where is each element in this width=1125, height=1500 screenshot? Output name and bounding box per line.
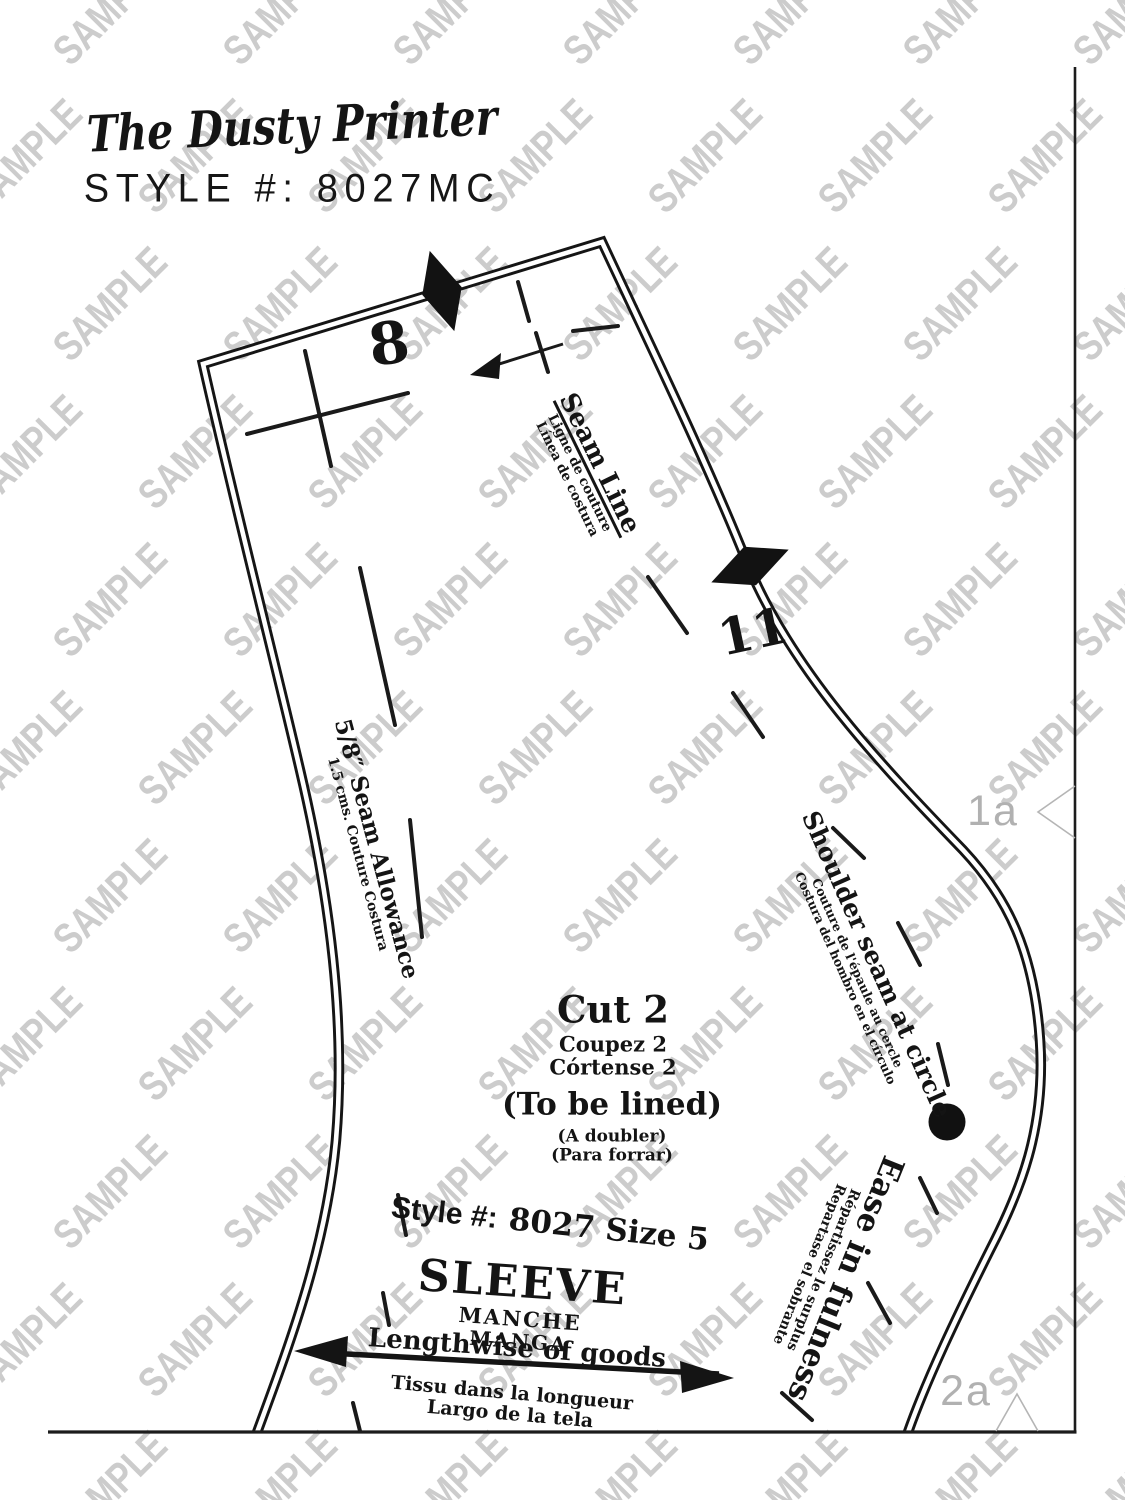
- watermark-text: SAMPLE: [0, 979, 92, 1111]
- lining-note-label: (To be lined) (A doubler) (Para forrar): [502, 1087, 722, 1164]
- watermark-text: SAMPLE: [895, 1423, 1027, 1500]
- watermark-text: SAMPLE: [980, 1275, 1112, 1407]
- marker-1a-chevron-icon: [1038, 786, 1075, 838]
- watermark-text: SAMPLE: [980, 387, 1112, 519]
- watermark-text: SAMPLE: [45, 0, 177, 75]
- watermark-text: SAMPLE: [725, 0, 857, 75]
- watermark-text: SAMPLE: [0, 831, 7, 963]
- watermark-text: SAMPLE: [300, 979, 432, 1111]
- watermark-text: SAMPLE: [640, 683, 772, 815]
- watermark-text: SAMPLE: [130, 979, 262, 1111]
- watermark-text: SAMPLE: [385, 1423, 517, 1500]
- watermark-text: SAMPLE: [0, 1127, 7, 1259]
- watermark-text: SAMPLE: [810, 387, 942, 519]
- watermark-text: SAMPLE: [640, 1275, 772, 1407]
- tile-marker-2a: 2a: [940, 1367, 992, 1415]
- cut-en: Cut 2: [549, 990, 676, 1031]
- lining-es: (Para forrar): [502, 1146, 722, 1165]
- watermark-text: SAMPLE: [130, 683, 262, 815]
- watermark-text: SAMPLE: [0, 91, 92, 223]
- watermark-text: SAMPLE: [555, 831, 687, 963]
- cut-fr: Coupez 2: [549, 1032, 676, 1055]
- watermark-text: SAMPLE: [385, 0, 517, 75]
- style-number-heading: STYLE #: 8027MC: [84, 167, 501, 212]
- cut-quantity-label: Cut 2 Coupez 2 Córtense 2: [549, 990, 676, 1079]
- watermark-text: SAMPLE: [895, 1127, 1027, 1259]
- tile-marker-1a: 1a: [967, 787, 1019, 835]
- watermark-text: SAMPLE: [45, 1127, 177, 1259]
- watermark-text: SAMPLE: [0, 535, 7, 667]
- watermark-text: SAMPLE: [980, 979, 1112, 1111]
- watermark-text: SAMPLE: [45, 1423, 177, 1500]
- lining-en: (To be lined): [502, 1087, 722, 1121]
- watermark-text: SAMPLE: [725, 239, 857, 371]
- watermark-text: SAMPLE: [0, 683, 92, 815]
- watermark-text: SAMPLE: [895, 535, 1027, 667]
- watermark-text: SAMPLE: [895, 239, 1027, 371]
- watermark-text: SAMPLE: [45, 535, 177, 667]
- watermark-text: SAMPLE: [1065, 1423, 1125, 1500]
- watermark-text: SAMPLE: [130, 1275, 262, 1407]
- lining-fr: (A doubler): [502, 1127, 722, 1146]
- watermark-text: SAMPLE: [0, 0, 7, 75]
- watermark-text: SAMPLE: [640, 91, 772, 223]
- watermark-text: SAMPLE: [555, 239, 687, 371]
- watermark-text: SAMPLE: [215, 535, 347, 667]
- watermark-text: SAMPLE: [555, 0, 687, 75]
- pattern-page: SAMPLESAMPLESAMPLESAMPLESAMPLESAMPLESAMP…: [0, 0, 1125, 1500]
- watermark-text: SAMPLE: [45, 239, 177, 371]
- watermark-text: SAMPLE: [0, 1275, 92, 1407]
- watermark-text: SAMPLE: [130, 387, 262, 519]
- watermark-text: SAMPLE: [215, 0, 347, 75]
- watermark-text: SAMPLE: [0, 239, 7, 371]
- watermark-text: SAMPLE: [385, 535, 517, 667]
- watermark-text: SAMPLE: [215, 1423, 347, 1500]
- watermark-text: SAMPLE: [1065, 0, 1125, 75]
- cut-es: Córtense 2: [549, 1055, 676, 1078]
- watermark-text: SAMPLE: [0, 1423, 7, 1500]
- watermark-text: SAMPLE: [810, 91, 942, 223]
- watermark-text: SAMPLE: [725, 1423, 857, 1500]
- watermark-text: SAMPLE: [980, 91, 1112, 223]
- watermark-text: SAMPLE: [0, 387, 92, 519]
- watermark-text: SAMPLE: [470, 683, 602, 815]
- watermark-text: SAMPLE: [45, 831, 177, 963]
- seam-direction-arrow-icon: [470, 344, 563, 379]
- watermark-text: SAMPLE: [895, 0, 1027, 75]
